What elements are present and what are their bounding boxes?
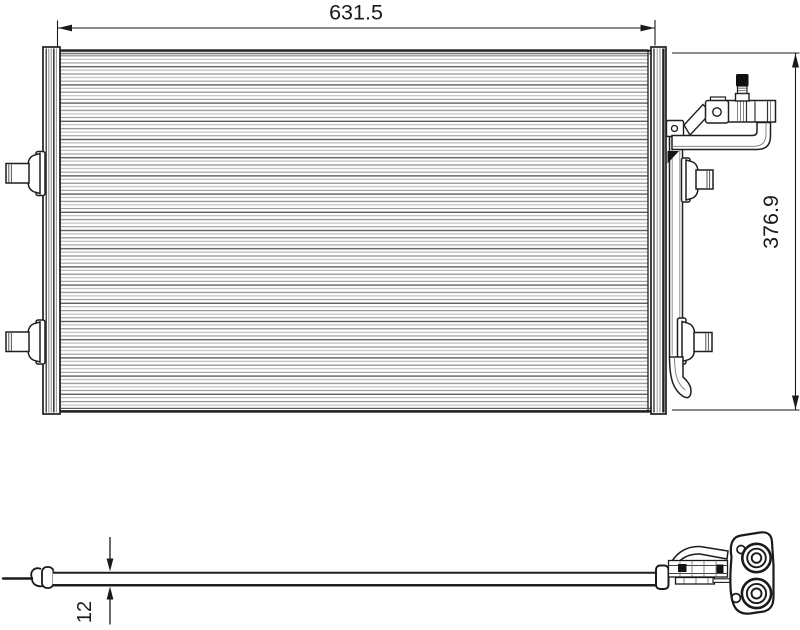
lower-left-port-stub: [6, 320, 45, 364]
bottom-elbow-pipe: [670, 357, 692, 398]
connection-flange: [730, 532, 773, 613]
front-view: 631.5 376.9: [6, 1, 800, 415]
arrow-up-icon: [792, 54, 799, 68]
technical-drawing-page: 631.5 376.9: [0, 0, 800, 630]
side-end-cap: [42, 567, 54, 588]
fin-core: [60, 52, 648, 407]
valve-cap: [736, 74, 749, 87]
condenser-technical-drawing: 631.5 376.9: [0, 0, 800, 630]
arrow-down-icon: [107, 559, 114, 572]
arrow-up-icon: [107, 587, 114, 600]
side-view: 12: [3, 532, 774, 624]
arrow-down-icon: [792, 396, 799, 410]
dim-width-label: 631.5: [329, 1, 383, 25]
arrow-right-icon: [641, 25, 655, 32]
bracket-hole: [713, 108, 721, 116]
service-valve-assembly: [668, 74, 776, 164]
arrow-left-icon: [58, 25, 72, 32]
dim-width: 631.5: [58, 1, 656, 47]
mounting-bracket-arm: [667, 105, 712, 137]
dim-height-label: 376.9: [759, 195, 783, 249]
manifold-block: [727, 101, 776, 123]
bar-end-clamp: [656, 566, 669, 590]
upper-right-port-stub: [682, 158, 714, 202]
right-header-tank: [651, 47, 666, 414]
core-profile-bar: [53, 572, 660, 586]
dim-depth-label: 12: [74, 601, 96, 623]
side-piping: [669, 546, 737, 584]
upper-left-port-stub: [6, 152, 45, 196]
